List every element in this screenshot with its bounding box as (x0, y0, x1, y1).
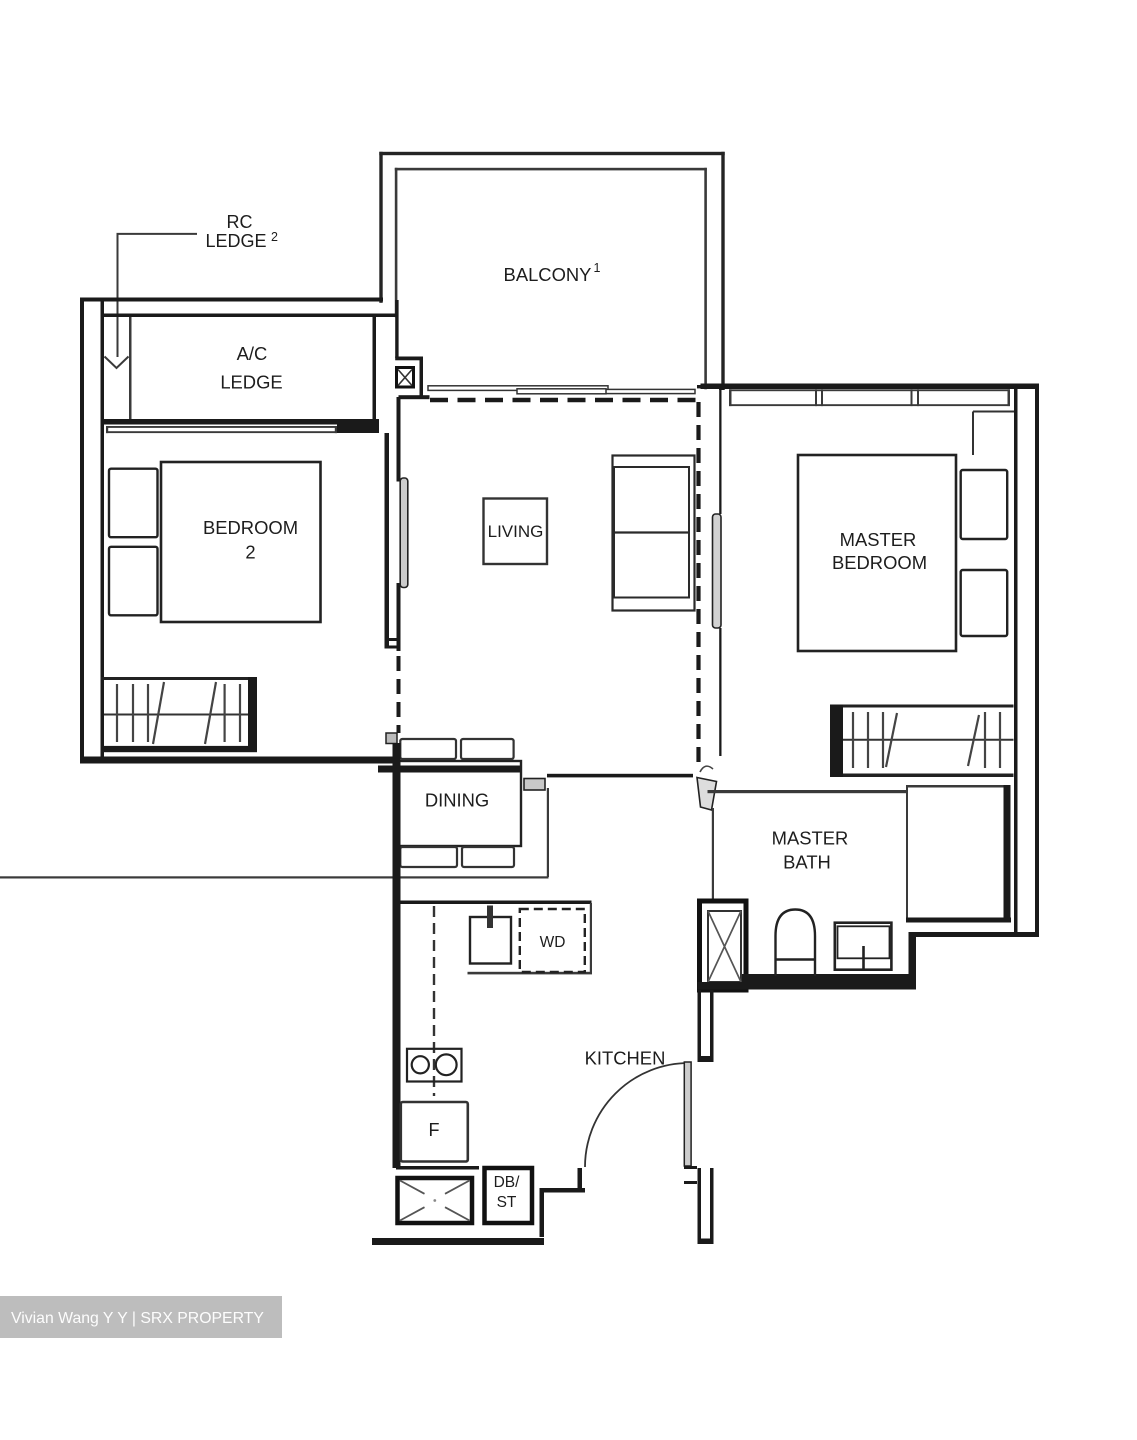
svg-text:2: 2 (245, 542, 255, 563)
svg-text:WD: WD (540, 934, 566, 951)
svg-text:BEDROOM: BEDROOM (203, 517, 298, 538)
svg-text:BATH: BATH (783, 852, 831, 873)
svg-text:ST: ST (497, 1194, 517, 1211)
svg-text:DB/: DB/ (494, 1174, 521, 1191)
svg-text:MASTER: MASTER (772, 828, 849, 849)
svg-text:BEDROOM: BEDROOM (832, 552, 927, 573)
svg-text:Vivian Wang Y Y | SRX PROPERTY: Vivian Wang Y Y | SRX PROPERTY (11, 1310, 264, 1327)
svg-text:KITCHEN: KITCHEN (585, 1048, 666, 1069)
svg-text:BALCONY: BALCONY (504, 264, 592, 285)
svg-text:LEDGE: LEDGE (205, 231, 266, 251)
svg-text:LEDGE: LEDGE (220, 372, 282, 393)
svg-text:RC: RC (227, 212, 253, 232)
svg-text:MASTER: MASTER (840, 529, 917, 550)
svg-text:1: 1 (594, 261, 601, 275)
svg-text:DINING: DINING (425, 790, 489, 811)
svg-text:LIVING: LIVING (488, 522, 544, 541)
svg-text:A/C: A/C (237, 343, 268, 364)
svg-text:F: F (429, 1120, 440, 1140)
svg-text:2: 2 (271, 230, 278, 244)
